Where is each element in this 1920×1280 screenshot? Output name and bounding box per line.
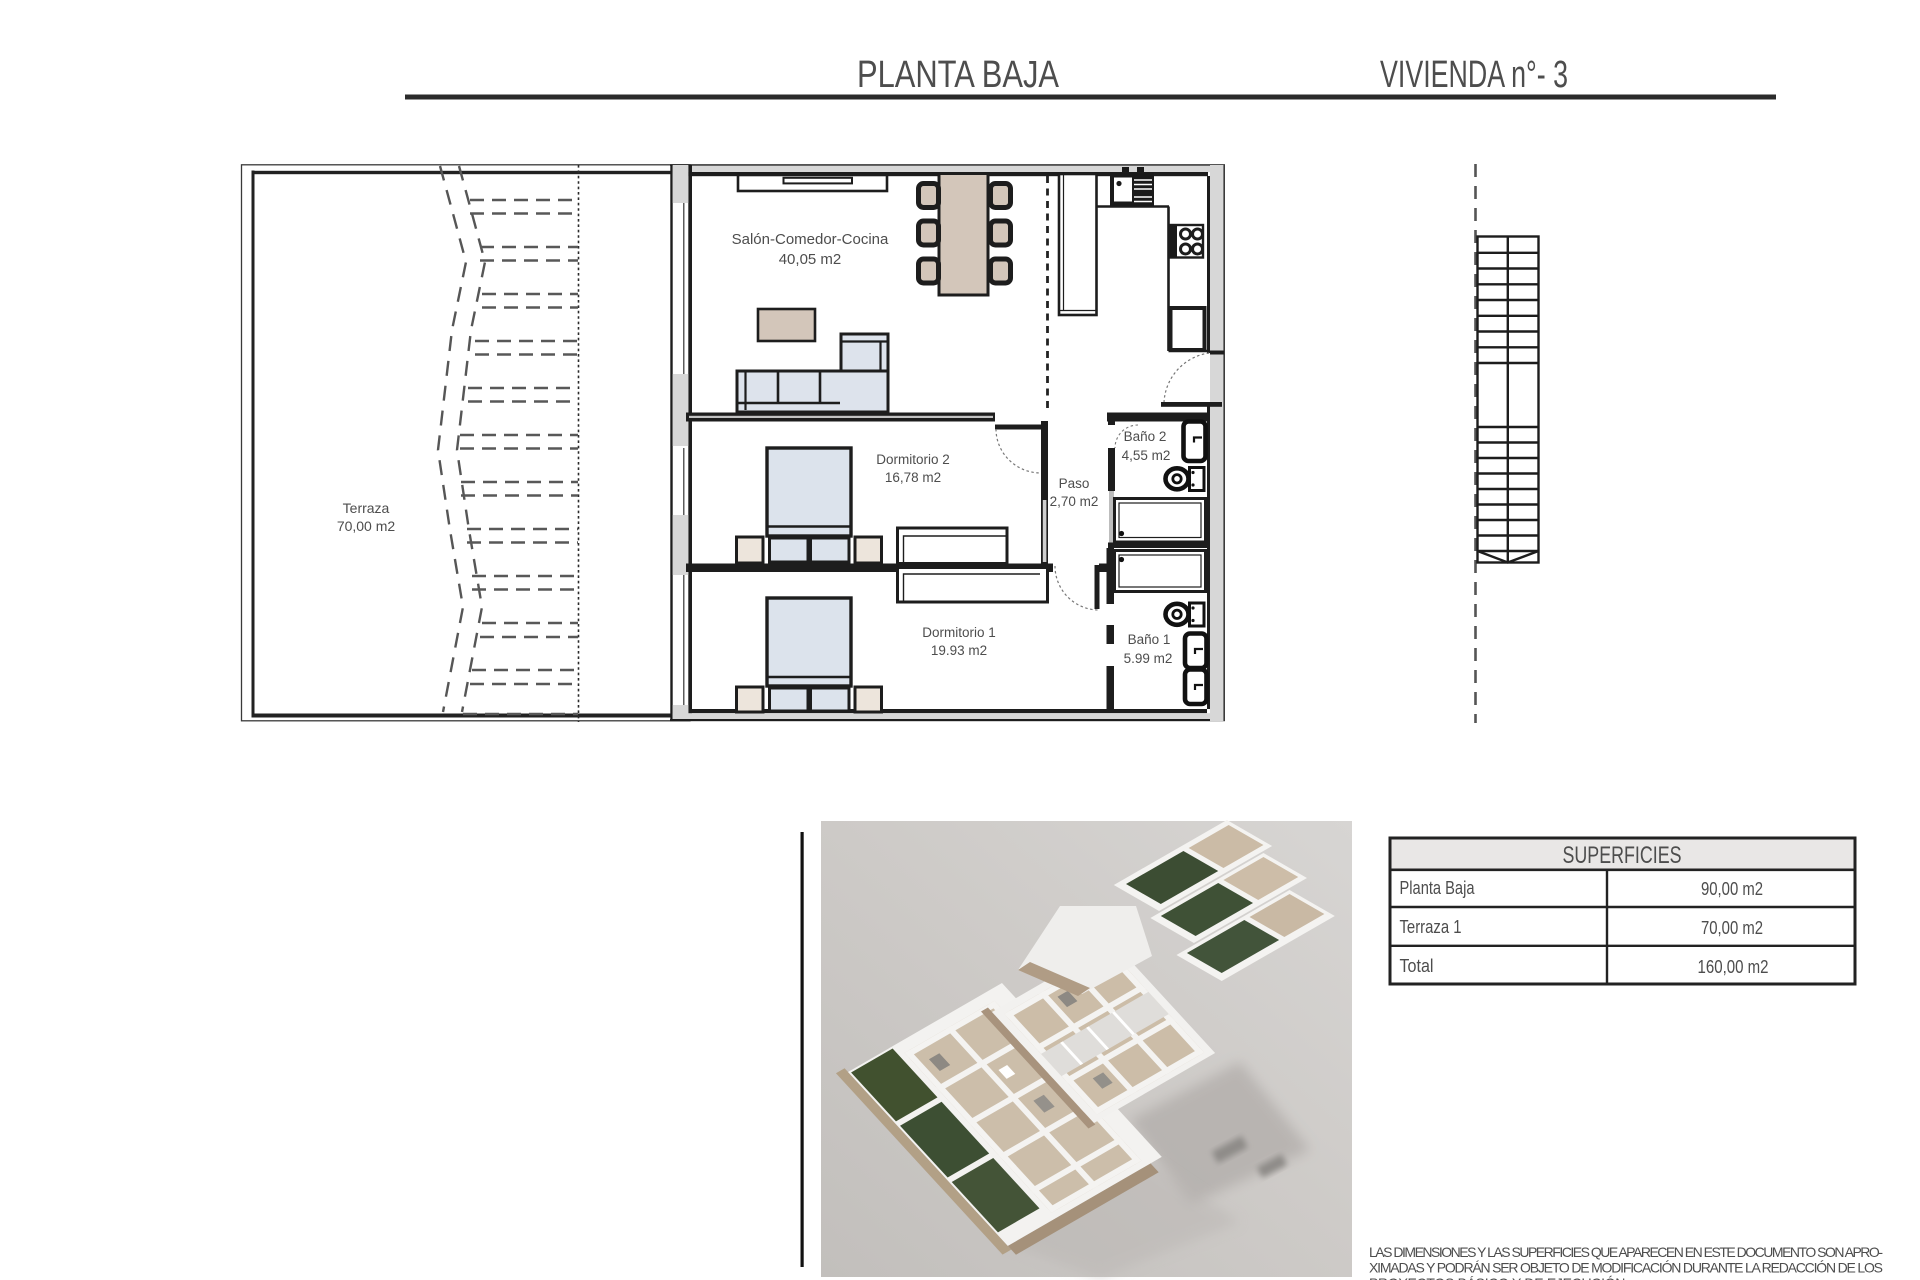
svg-text:5.99 m2: 5.99 m2 xyxy=(1124,651,1173,666)
svg-text:Planta Baja: Planta Baja xyxy=(1400,877,1476,898)
svg-text:70,00 m2: 70,00 m2 xyxy=(1701,917,1763,938)
svg-text:Salón-Comedor-Cocina: Salón-Comedor-Cocina xyxy=(732,231,889,248)
svg-text:160,00 m2: 160,00 m2 xyxy=(1698,956,1769,977)
svg-text:16,78 m2: 16,78 m2 xyxy=(885,470,941,485)
svg-text:70,00 m2: 70,00 m2 xyxy=(337,518,396,534)
svg-text:4,55 m2: 4,55 m2 xyxy=(1122,448,1171,463)
svg-text:Dormitorio 2: Dormitorio 2 xyxy=(876,452,950,467)
svg-text:XIMADAS Y PODRÁN SER OBJETO DE: XIMADAS Y PODRÁN SER OBJETO DE MODIFICAC… xyxy=(1369,1260,1883,1276)
svg-text:2,70 m2: 2,70 m2 xyxy=(1050,494,1099,509)
svg-text:90,00 m2: 90,00 m2 xyxy=(1701,878,1763,899)
svg-text:Baño 1: Baño 1 xyxy=(1128,632,1171,647)
svg-text:Paso: Paso xyxy=(1059,476,1090,491)
svg-text:SUPERFICIES: SUPERFICIES xyxy=(1563,842,1682,869)
svg-text:PROYECTOS BÁSICO Y DE EJECUCIÓ: PROYECTOS BÁSICO Y DE EJECUCIÓN. xyxy=(1369,1275,1629,1280)
svg-text:Terraza: Terraza xyxy=(343,500,390,516)
svg-text:Baño 2: Baño 2 xyxy=(1124,429,1167,444)
svg-text:Terraza 1: Terraza 1 xyxy=(1400,916,1462,937)
svg-text:Total: Total xyxy=(1400,955,1434,976)
svg-text:Dormitorio 1: Dormitorio 1 xyxy=(922,625,996,640)
svg-text:40,05 m2: 40,05 m2 xyxy=(779,251,842,268)
svg-text:LAS DIMENSIONES Y LAS SUPERFIC: LAS DIMENSIONES Y LAS SUPERFICIES QUE AP… xyxy=(1369,1244,1883,1260)
svg-text:PLANTA BAJA: PLANTA BAJA xyxy=(857,54,1060,96)
svg-text:VIVIENDA n°- 3: VIVIENDA n°- 3 xyxy=(1380,54,1568,96)
svg-text:19.93 m2: 19.93 m2 xyxy=(931,643,987,658)
